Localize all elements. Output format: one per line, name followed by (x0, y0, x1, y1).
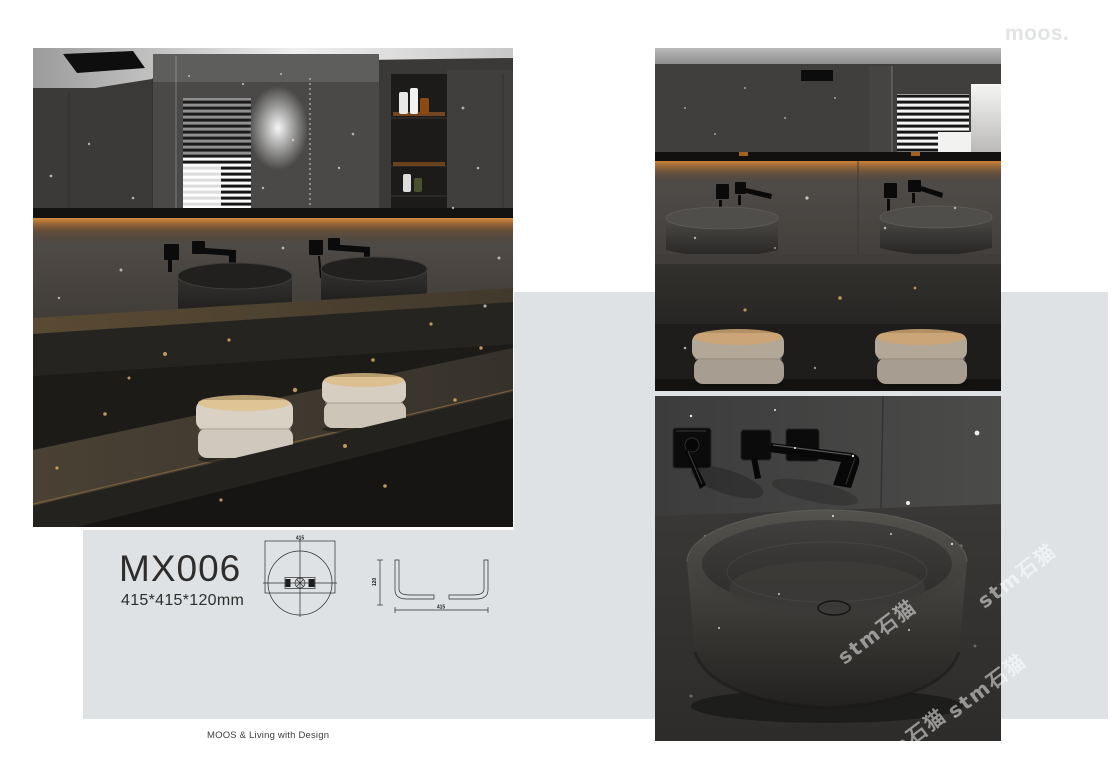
counter-top (655, 254, 1001, 264)
towel-stack-right (873, 329, 969, 388)
bottle (414, 178, 422, 192)
dim-side-height: 120 (372, 578, 378, 587)
bottle (420, 98, 429, 114)
towel-stack-left (689, 329, 785, 388)
photo-basin-closeup (655, 396, 1001, 741)
bottle (403, 174, 411, 192)
product-dimensions: 415*415*120mm (121, 592, 244, 610)
top-view (263, 539, 337, 617)
counter-front (655, 264, 1001, 324)
led-glow-strip (33, 218, 513, 244)
basin-right (880, 206, 992, 255)
mirror (153, 54, 379, 220)
mirror (655, 48, 1001, 154)
side-view (377, 560, 488, 613)
ceiling-vent (801, 70, 833, 81)
brand-tagline: MOOS & Living with Design (207, 730, 329, 741)
photo-double-vanity (33, 48, 513, 527)
basin-left (666, 207, 778, 257)
led-glow-strip (655, 161, 1001, 183)
window-blinds-upper (183, 98, 251, 156)
bottle (399, 92, 408, 114)
bottle (410, 88, 418, 114)
catalog-page: moos. (0, 0, 1111, 770)
dim-top-width: 415 (296, 536, 305, 542)
product-code: MX006 (119, 548, 241, 590)
shelf-unit (391, 74, 447, 220)
technical-drawing: 415 120 415 (258, 531, 493, 623)
brand-logo: moos. (1005, 22, 1069, 46)
photo-front-vanity (655, 48, 1001, 391)
dim-side-width: 415 (437, 605, 446, 611)
